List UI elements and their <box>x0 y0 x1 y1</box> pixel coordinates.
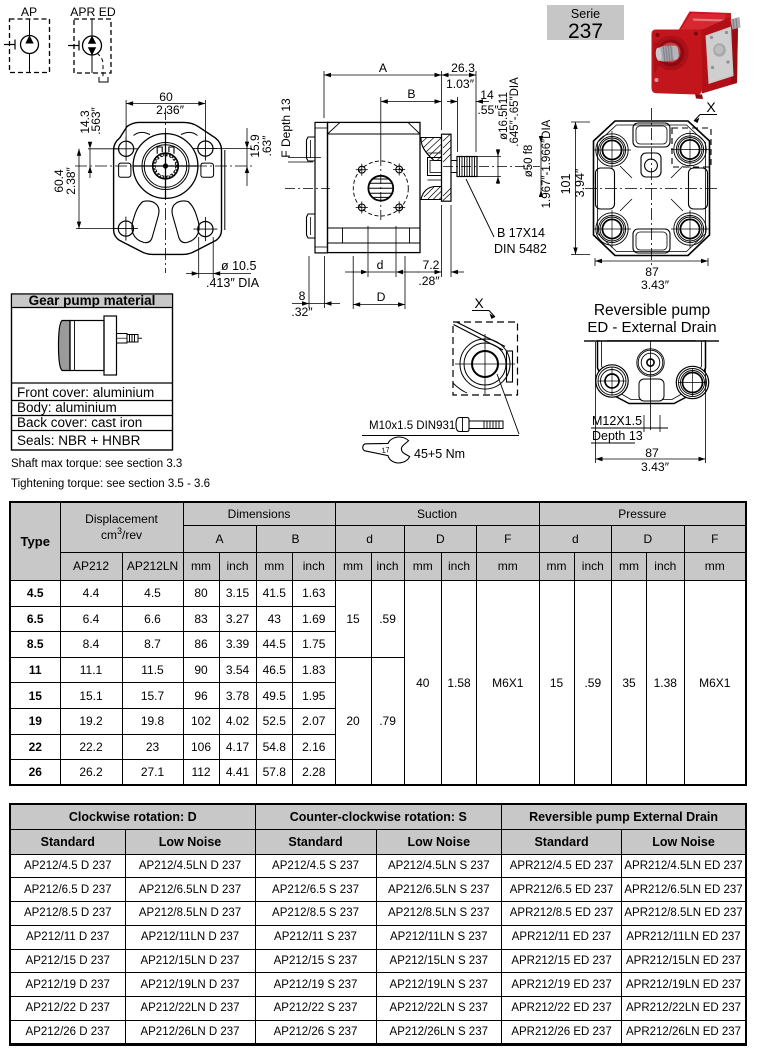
svg-text:Back cover: cast iron: Back cover: cast iron <box>17 415 142 430</box>
svg-text:Body: aluminium: Body: aluminium <box>17 400 117 415</box>
svg-text:Gear pump material: Gear pump material <box>29 293 156 308</box>
svg-text:Tightening torque: see section: Tightening torque: see section 3.5 - 3.6 <box>11 478 210 490</box>
svg-text:Shaft max torque: see section: Shaft max torque: see section 3.3 <box>11 458 182 470</box>
svg-text:Front cover: aluminium: Front cover: aluminium <box>17 385 154 400</box>
svg-text:Seals: NBR + HNBR: Seals: NBR + HNBR <box>17 433 141 448</box>
